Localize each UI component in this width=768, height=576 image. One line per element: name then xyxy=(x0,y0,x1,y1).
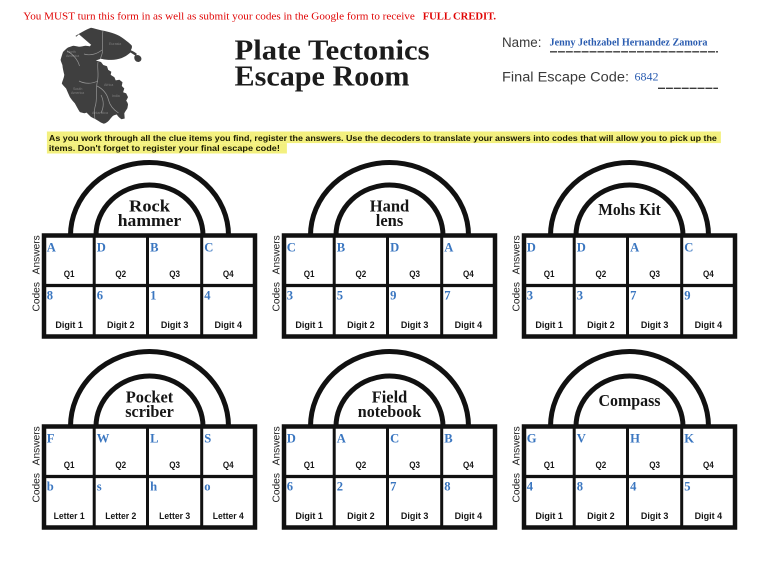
svg-text:America: America xyxy=(66,54,79,58)
svg-text:b: b xyxy=(47,480,54,494)
svg-text:Digit 2: Digit 2 xyxy=(347,320,375,331)
svg-text:Digit 3: Digit 3 xyxy=(401,511,429,522)
svg-text:D: D xyxy=(527,240,536,254)
svg-text:Letter 2: Letter 2 xyxy=(105,511,136,522)
svg-text:Answers: Answers xyxy=(512,426,523,465)
svg-text:7: 7 xyxy=(390,480,396,494)
svg-text:Final Escape Code:: Final Escape Code: xyxy=(502,70,629,85)
svg-text:8: 8 xyxy=(577,480,583,494)
svg-text:Africa: Africa xyxy=(104,83,113,87)
svg-text:America: America xyxy=(71,91,84,95)
svg-text:As you work through all the cl: As you work through all the clue items y… xyxy=(49,133,717,143)
svg-text:Q1: Q1 xyxy=(304,460,315,471)
svg-text:Q4: Q4 xyxy=(463,460,474,471)
svg-text:C: C xyxy=(684,240,693,254)
svg-text:Answers: Answers xyxy=(272,235,283,274)
svg-text:Digit 1: Digit 1 xyxy=(55,320,83,331)
svg-text:W: W xyxy=(97,431,110,445)
svg-text:Q3: Q3 xyxy=(409,460,420,471)
svg-text:Q1: Q1 xyxy=(304,269,315,280)
svg-text:6842: 6842 xyxy=(635,70,659,84)
svg-text:H: H xyxy=(630,431,640,445)
svg-text:A: A xyxy=(630,240,639,254)
svg-text:Answers: Answers xyxy=(32,426,43,465)
svg-text:6: 6 xyxy=(287,480,293,494)
svg-text:Digit 2: Digit 2 xyxy=(587,511,615,522)
svg-text:India: India xyxy=(112,94,120,98)
svg-text:Q1: Q1 xyxy=(544,460,555,471)
svg-text:K: K xyxy=(684,431,694,445)
svg-text:Q4: Q4 xyxy=(223,269,234,280)
svg-text:Q4: Q4 xyxy=(223,460,234,471)
svg-text:D: D xyxy=(287,431,296,445)
svg-text:Q3: Q3 xyxy=(649,269,660,280)
svg-text:lens: lens xyxy=(376,211,404,230)
svg-text:Jenny Jethzabel Hernandez Zamo: Jenny Jethzabel Hernandez Zamora xyxy=(550,37,708,48)
svg-text:C: C xyxy=(204,240,213,254)
svg-text:4: 4 xyxy=(630,480,637,494)
svg-text:9: 9 xyxy=(390,289,396,303)
svg-text:L: L xyxy=(150,431,158,445)
svg-text:Digit 1: Digit 1 xyxy=(295,320,323,331)
svg-text:Digit 3: Digit 3 xyxy=(641,511,669,522)
svg-text:Q3: Q3 xyxy=(169,460,180,471)
svg-text:Digit 1: Digit 1 xyxy=(295,511,323,522)
svg-text:s: s xyxy=(97,480,102,494)
svg-text:Q4: Q4 xyxy=(463,269,474,280)
svg-text:Q3: Q3 xyxy=(649,460,660,471)
svg-text:Digit 2: Digit 2 xyxy=(347,511,375,522)
svg-text:7: 7 xyxy=(630,289,636,303)
svg-text:7: 7 xyxy=(444,289,450,303)
svg-text:D: D xyxy=(577,240,586,254)
svg-text:notebook: notebook xyxy=(358,402,422,421)
svg-text:9: 9 xyxy=(684,289,690,303)
svg-text:Answers: Answers xyxy=(512,235,523,274)
svg-text:S: S xyxy=(204,431,211,445)
svg-text:3: 3 xyxy=(287,289,293,303)
svg-text:Escape Room: Escape Room xyxy=(235,61,410,92)
svg-text:Codes: Codes xyxy=(512,282,523,311)
svg-text:V: V xyxy=(577,431,586,445)
svg-text:Codes: Codes xyxy=(512,473,523,502)
svg-text:o: o xyxy=(204,480,210,494)
svg-text:B: B xyxy=(150,240,159,254)
svg-text:Answers: Answers xyxy=(32,235,43,274)
svg-text:Digit 1: Digit 1 xyxy=(535,511,563,522)
svg-text:G: G xyxy=(527,431,537,445)
svg-text:D: D xyxy=(97,240,106,254)
svg-text:A: A xyxy=(337,431,346,445)
svg-text:4: 4 xyxy=(527,480,534,494)
svg-text:Q4: Q4 xyxy=(703,460,714,471)
svg-text:Q1: Q1 xyxy=(64,460,75,471)
svg-text:Q2: Q2 xyxy=(356,460,367,471)
svg-text:5: 5 xyxy=(337,289,343,303)
svg-text:items. Don't forget to registe: items. Don't forget to register your fin… xyxy=(49,143,280,153)
svg-text:Q2: Q2 xyxy=(596,269,607,280)
svg-text:Q4: Q4 xyxy=(703,269,714,280)
svg-text:h: h xyxy=(150,480,157,494)
svg-text:3: 3 xyxy=(527,289,533,303)
svg-text:Answers: Answers xyxy=(272,426,283,465)
svg-text:Q1: Q1 xyxy=(544,269,555,280)
svg-text:scriber: scriber xyxy=(125,402,174,421)
svg-text:Codes: Codes xyxy=(272,473,283,502)
svg-text:1: 1 xyxy=(150,289,156,303)
svg-text:Compass: Compass xyxy=(599,391,661,410)
svg-text:C: C xyxy=(287,240,296,254)
svg-text:Letter 4: Letter 4 xyxy=(213,511,245,522)
svg-text:Q2: Q2 xyxy=(115,269,126,280)
svg-text:6: 6 xyxy=(97,289,103,303)
svg-text:8: 8 xyxy=(47,289,53,303)
svg-text:Name:: Name: xyxy=(502,35,541,50)
svg-text:3: 3 xyxy=(577,289,583,303)
svg-text:Digit 4: Digit 4 xyxy=(695,511,723,522)
svg-text:8: 8 xyxy=(444,480,450,494)
svg-text:Eurasia: Eurasia xyxy=(109,42,121,46)
svg-text:A: A xyxy=(444,240,453,254)
svg-text:Antarctica: Antarctica xyxy=(92,111,108,115)
svg-text:Codes: Codes xyxy=(272,282,283,311)
svg-text:Mohs Kit: Mohs Kit xyxy=(598,200,661,219)
svg-text:D: D xyxy=(390,240,399,254)
svg-text:Q1: Q1 xyxy=(64,269,75,280)
svg-text:Letter 3: Letter 3 xyxy=(159,511,190,522)
svg-text:Digit 4: Digit 4 xyxy=(455,511,483,522)
svg-text:Q3: Q3 xyxy=(169,269,180,280)
svg-text:FULL CREDIT.: FULL CREDIT. xyxy=(423,10,497,22)
svg-text:Digit 1: Digit 1 xyxy=(535,320,563,331)
svg-text:Digit 4: Digit 4 xyxy=(215,320,243,331)
svg-text:Digit 3: Digit 3 xyxy=(641,320,669,331)
svg-text:Digit 2: Digit 2 xyxy=(107,320,135,331)
svg-text:B: B xyxy=(337,240,346,254)
svg-text:A: A xyxy=(47,240,56,254)
svg-text:B: B xyxy=(444,431,453,445)
svg-text:Codes: Codes xyxy=(32,282,43,311)
svg-text:C: C xyxy=(390,431,399,445)
svg-text:4: 4 xyxy=(204,289,211,303)
svg-text:Q2: Q2 xyxy=(356,269,367,280)
svg-text:Digit 3: Digit 3 xyxy=(161,320,189,331)
svg-text:Digit 2: Digit 2 xyxy=(587,320,615,331)
svg-text:hammer: hammer xyxy=(118,211,182,230)
svg-text:Q3: Q3 xyxy=(409,269,420,280)
svg-text:5: 5 xyxy=(684,480,690,494)
svg-text:Digit 4: Digit 4 xyxy=(455,320,483,331)
svg-text:F: F xyxy=(47,431,55,445)
svg-text:Q2: Q2 xyxy=(596,460,607,471)
svg-text:Digit 3: Digit 3 xyxy=(401,320,429,331)
svg-text:Q2: Q2 xyxy=(115,460,126,471)
svg-text:2: 2 xyxy=(337,480,343,494)
svg-text:Codes: Codes xyxy=(32,473,43,502)
svg-text:Letter 1: Letter 1 xyxy=(54,511,86,522)
svg-text:You MUST turn this form in as: You MUST turn this form in as well as su… xyxy=(23,10,415,22)
svg-text:Digit 4: Digit 4 xyxy=(695,320,723,331)
